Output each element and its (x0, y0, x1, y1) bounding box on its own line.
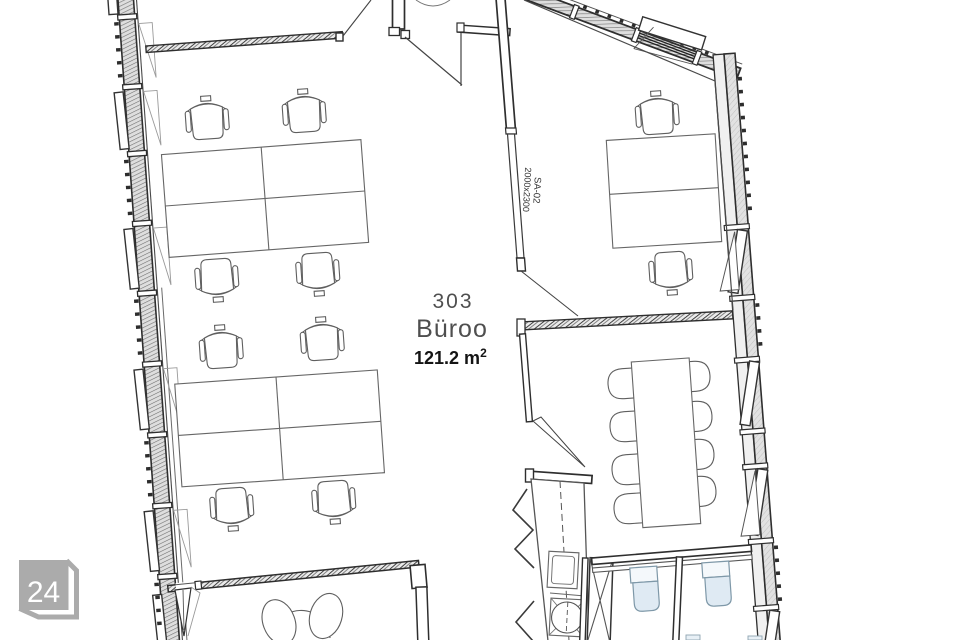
svg-text:24: 24 (27, 576, 60, 609)
svg-text:121.2 m2: 121.2 m2 (414, 346, 487, 368)
svg-text:Büroo: Büroo (416, 315, 488, 343)
svg-text:303: 303 (432, 290, 473, 313)
